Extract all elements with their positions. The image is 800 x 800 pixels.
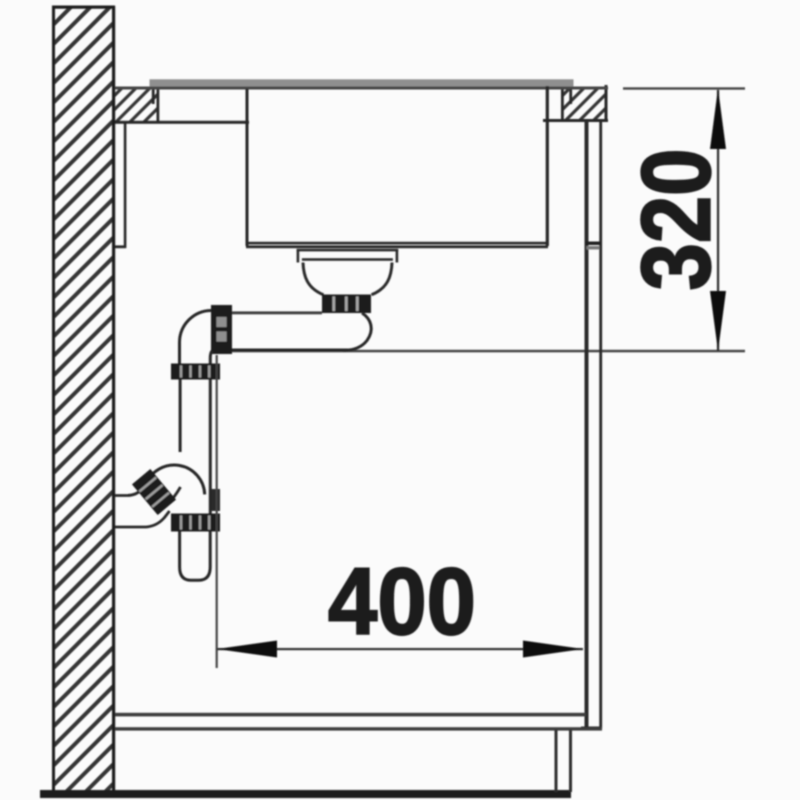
- svg-text:400: 400: [328, 549, 476, 655]
- svg-text:320: 320: [622, 149, 731, 291]
